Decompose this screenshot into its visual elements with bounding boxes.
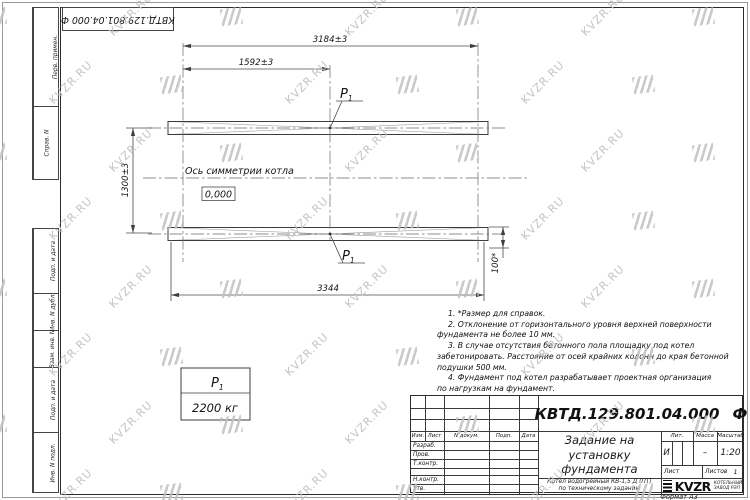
tb-row-utv: Утв.	[413, 486, 425, 492]
drawing-sheet: Перв. примен. Справ. N Подп. и дата Инв.…	[0, 0, 750, 500]
axis-symmetry-label: Ось симметрии котла	[185, 166, 294, 177]
tb-lit-value: И	[661, 448, 672, 458]
tb-doc-subtitle: Котел водогрейный КВ-1,5 Д (ПТ) по техни…	[538, 478, 661, 494]
note-line: 2. Отклонение от горизонтального уровня …	[437, 320, 733, 331]
note-line: 1. *Размер для справок.	[437, 309, 733, 320]
tb-col-podp: Подп.	[489, 433, 519, 439]
tb-designation-suffix: Ф	[733, 405, 748, 423]
beam-diagonals	[168, 122, 488, 241]
tb-company-cell: KVZR КОТЕЛЬНЫЙ ЗАВОД РЭП	[661, 478, 744, 494]
load-label-bottom: P1	[342, 249, 355, 265]
title-block: Изм. Лист N докум. Подп. Дата Разраб. Пр…	[410, 395, 743, 493]
load-point-bottom: P1	[329, 233, 365, 265]
tb-designation: КВТД.129.801.04.000 Ф	[538, 396, 744, 431]
tb-row-tkontr: Т.контр.	[413, 461, 438, 467]
tb-mass-label: Масса	[693, 433, 717, 439]
dim-3344: 3344	[317, 284, 339, 294]
kvzr-hatch-icon	[663, 480, 672, 492]
tb-row-prov: Пров.	[413, 452, 430, 458]
tb-sheet-label: Лист	[664, 468, 679, 475]
level-mark: 0,000	[205, 190, 232, 201]
load-table-value: 2200 кг	[192, 401, 239, 415]
dimension-lines	[126, 46, 509, 301]
tb-row-nkontr: Н.контр.	[413, 477, 439, 483]
tb-mass-value: –	[693, 448, 717, 458]
dim-100: 100*	[491, 252, 501, 273]
tb-row-razrab: Разраб.	[413, 443, 436, 449]
dim-1300: 1300±3	[121, 163, 131, 198]
technical-notes: 1. *Размер для справок. 2. Отклонение от…	[437, 309, 733, 395]
tb-col-list: Лист	[425, 433, 444, 439]
tb-scale-label: Масштаб	[717, 433, 744, 439]
format-label: Формат А3	[640, 493, 718, 500]
note-line: забетонировать. Расстояние от осей крайн…	[437, 352, 733, 363]
note-line: подушки 500 мм.	[437, 363, 733, 374]
foundation-beams	[168, 122, 488, 241]
load-point-top: P1	[329, 87, 363, 129]
tb-col-data: Дата	[519, 433, 538, 439]
tb-col-ndokum: N докум.	[444, 433, 489, 439]
note-line: фундамента не более 10 мм.	[437, 330, 733, 341]
note-line: 4. Фундамент под котел разрабатывает про…	[437, 373, 733, 384]
load-table: P1 2200 кг	[181, 368, 250, 420]
dim-1592: 1592±3	[239, 58, 274, 68]
tb-scale-value: 1:20	[717, 448, 744, 458]
company-name: КОТЕЛЬНЫЙ ЗАВОД РЭП	[714, 481, 743, 491]
dim-3184: 3184±3	[313, 35, 348, 45]
note-line: по нагрузкам на фундамент.	[437, 384, 733, 395]
center-axes	[143, 43, 528, 262]
load-table-symbol: P1	[211, 376, 224, 392]
note-line: 3. В случае отсутствия бетонного пола пл…	[437, 341, 733, 352]
load-label-top: P1	[340, 87, 353, 103]
tb-lit-label: Лит.	[661, 433, 693, 439]
tb-sheets-label: Листов	[705, 468, 727, 475]
tb-col-izm: Изм.	[411, 433, 425, 439]
kvzr-logo: KVZR	[675, 479, 711, 494]
tb-sheets-value: 1	[729, 468, 742, 476]
tb-doc-title: Задание на установку фундамента	[538, 432, 661, 478]
